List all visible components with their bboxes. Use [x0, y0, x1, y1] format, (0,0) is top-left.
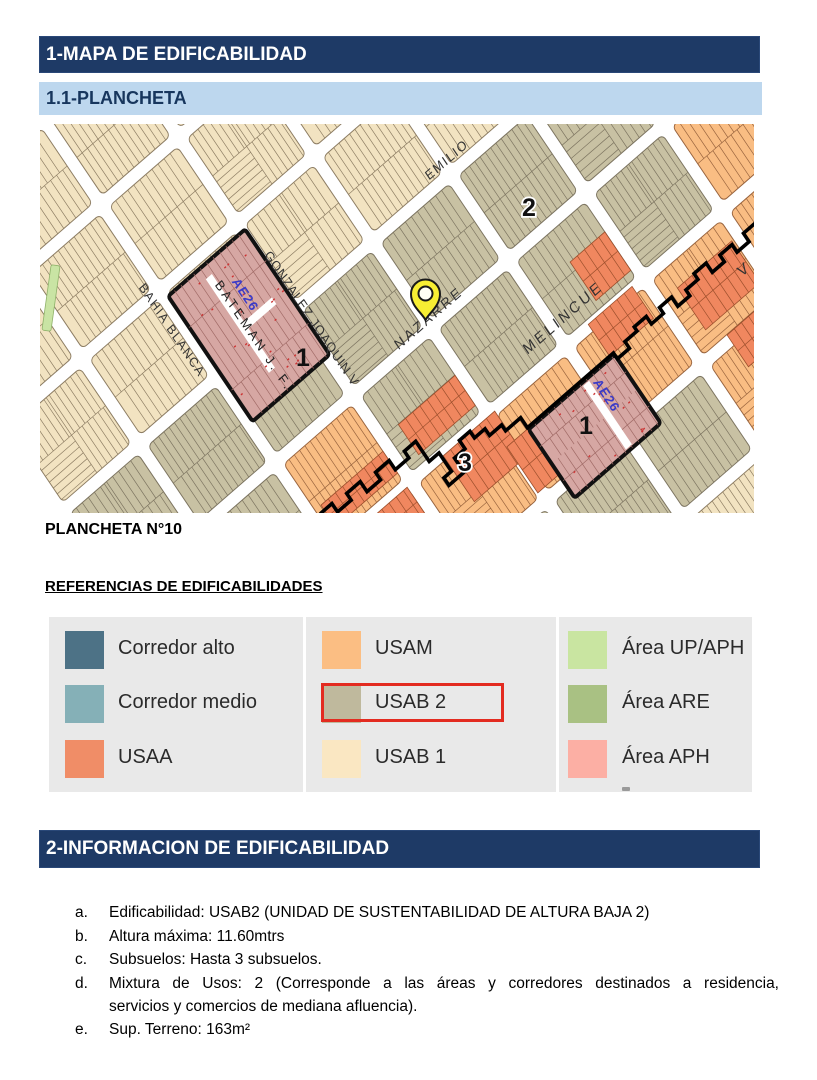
svg-text:1: 1: [579, 412, 593, 440]
svg-text:3: 3: [458, 449, 472, 477]
svg-text:2: 2: [522, 194, 536, 222]
svg-text:1: 1: [296, 344, 310, 372]
